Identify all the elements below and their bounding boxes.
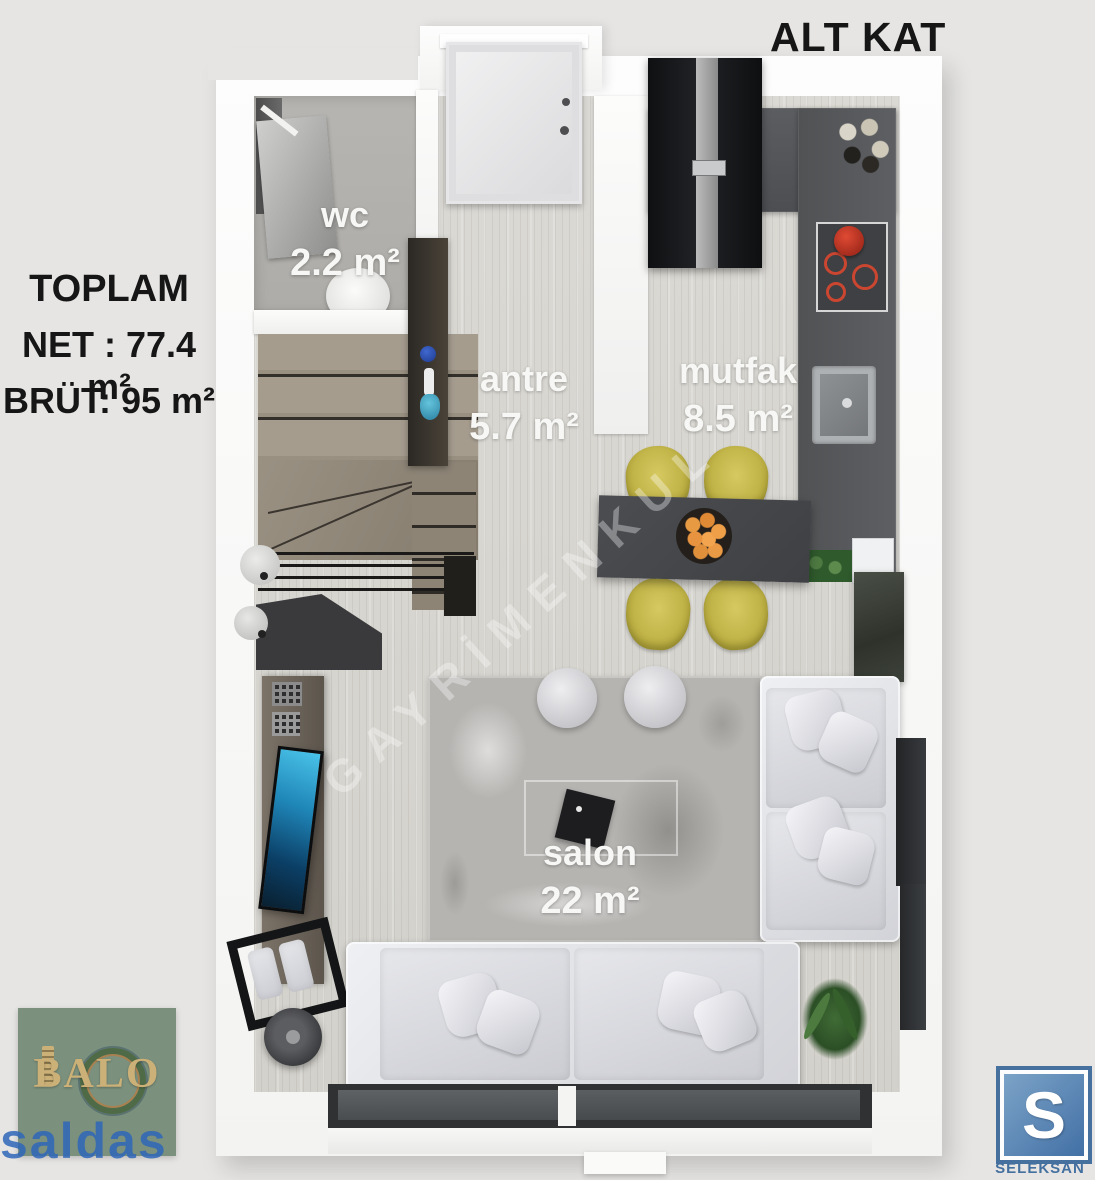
- room-name: wc: [278, 192, 412, 239]
- floor-lamp-pole: [286, 1030, 300, 1044]
- floorplan-render: GAYRİMENKUL wc 2.2 m² antre 5.7 m² mutfa…: [0, 0, 1095, 1180]
- fridge-display: [692, 160, 726, 176]
- room-label-mutfak: mutfak 8.5 m²: [662, 348, 814, 444]
- wall-dot: [258, 630, 266, 638]
- door-lock: [560, 126, 569, 135]
- room-name: antre: [452, 356, 596, 403]
- room-label-wc: wc 2.2 m²: [278, 192, 412, 288]
- window-mullion: [558, 1086, 576, 1126]
- summary-brut: BRÜT: 95 m²: [0, 380, 218, 422]
- room-name: salon: [508, 830, 672, 877]
- decor-vase: [320, 698, 346, 742]
- window-bottom-glass: [338, 1090, 560, 1120]
- background-patch: [208, 48, 418, 80]
- burner: [826, 282, 846, 302]
- fruit-bowl: [676, 508, 732, 564]
- entry-step: [584, 1152, 666, 1174]
- candle: [424, 368, 434, 396]
- seleksan-logo-box: S: [996, 1066, 1092, 1164]
- decor-cylinder: [240, 545, 280, 585]
- room-area: 8.5 m²: [662, 395, 814, 444]
- stair-newel: [444, 556, 476, 616]
- room-name: mutfak: [662, 348, 814, 395]
- wall-dot: [260, 572, 268, 580]
- kitchen-partition-wall: [594, 96, 648, 434]
- room-area: 22 m²: [508, 877, 672, 926]
- window-right: [896, 738, 926, 886]
- seleksan-logo-label: SELEKSAN: [988, 1160, 1092, 1177]
- entry-door: [446, 42, 582, 204]
- saldas-watermark-text: saldas: [0, 1112, 210, 1170]
- balo-logo-text: BALO: [18, 1050, 176, 1098]
- stone-partition: [854, 572, 904, 682]
- teal-vase: [420, 394, 440, 420]
- armchair-cushion: [278, 938, 315, 993]
- blue-vase: [420, 346, 436, 362]
- pouf: [624, 666, 686, 728]
- armchair-cushion: [247, 946, 284, 1001]
- room-area: 2.2 m²: [278, 239, 412, 288]
- kettle: [834, 226, 864, 256]
- window-sill: [328, 1128, 872, 1154]
- summary-heading: TOPLAM: [0, 268, 218, 311]
- kitchen-counter-right: [798, 108, 896, 572]
- wall-art: [272, 712, 300, 736]
- sink-faucet: [842, 398, 852, 408]
- door-handle: [562, 98, 570, 106]
- stair-railing: [258, 552, 474, 596]
- burner: [852, 264, 878, 290]
- room-label-salon: salon 22 m²: [508, 830, 672, 926]
- page-title: ALT KAT: [770, 14, 950, 61]
- room-area: 5.7 m²: [452, 403, 596, 452]
- window-bottom-glass: [576, 1090, 860, 1120]
- burner: [824, 252, 847, 275]
- pouf: [537, 668, 597, 728]
- room-label-antre: antre 5.7 m²: [452, 356, 596, 452]
- side-table-decor: [576, 806, 582, 812]
- spice-jars: [836, 118, 890, 176]
- wall-art: [272, 682, 302, 706]
- seleksan-logo-letter: S: [1022, 1082, 1066, 1148]
- window-right: [900, 884, 926, 1030]
